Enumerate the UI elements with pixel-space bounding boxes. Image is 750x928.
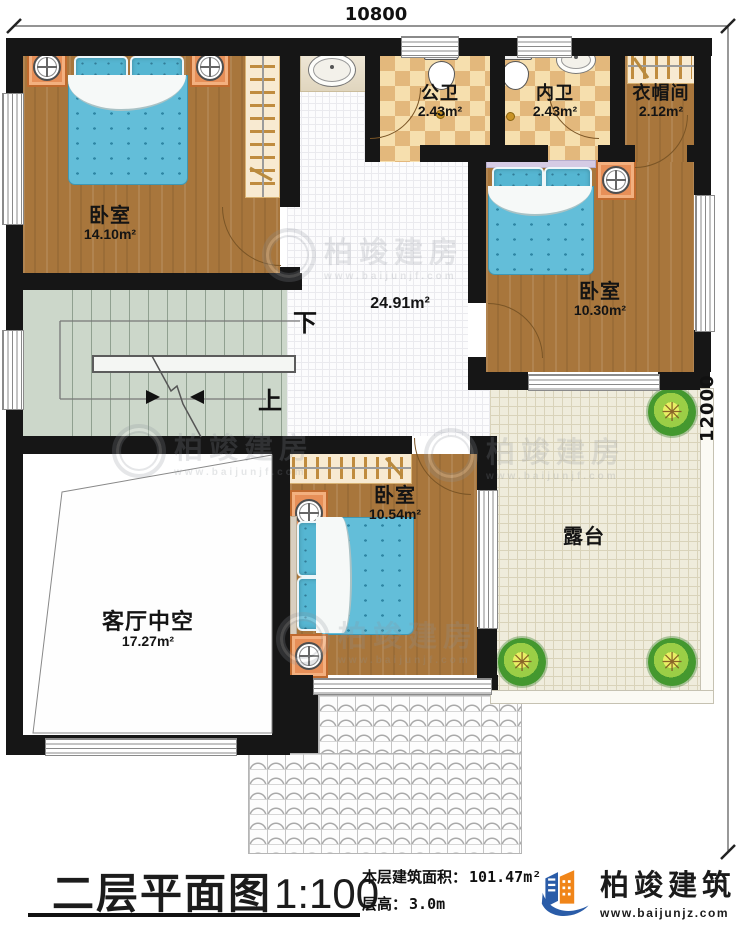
room-living-void <box>23 455 272 735</box>
terrace-bottom-border <box>490 690 714 704</box>
watermark: 柏竣建房www.baijunjf.com <box>424 428 626 482</box>
label-stairs-up: 上 <box>258 381 282 416</box>
plant: ✳ <box>648 388 696 436</box>
drawing-info: 本层建筑面积：101.47m² 层高：3.0m <box>362 864 541 918</box>
window <box>2 330 24 410</box>
wall <box>365 145 370 162</box>
window <box>45 738 237 756</box>
lamp-icon <box>602 166 630 194</box>
label-public-bath: 公卫 2.43m² <box>398 84 482 119</box>
wall <box>468 162 486 303</box>
floor-area-row: 本层建筑面积：101.47m² <box>362 864 541 891</box>
wall <box>6 448 23 755</box>
brand-block: 柏竣建筑 www.baijunjz.com <box>540 862 736 920</box>
roof-tiles-lower <box>248 753 522 854</box>
wall <box>280 38 300 207</box>
wall <box>490 38 505 162</box>
window <box>313 678 492 695</box>
branches-icon: ✳ <box>511 649 533 675</box>
label-terrace: 露台 <box>522 526 646 548</box>
branches-icon: ✳ <box>661 399 683 425</box>
title-underline <box>28 913 360 917</box>
drawing-title: 二层平面图1:100 <box>52 860 379 921</box>
stair-handrail <box>92 355 296 373</box>
watermark: 柏竣建房www.baijunjf.com <box>276 612 478 666</box>
plant: ✳ <box>498 638 546 686</box>
wall <box>6 38 712 56</box>
lamp-icon <box>33 53 61 81</box>
lamp-icon <box>196 53 224 81</box>
watermark: 柏竣建房www.baijunjf.com <box>262 228 464 282</box>
label-bedroom-right: 卧室 10.30m² <box>538 281 662 318</box>
dimension-right: 12000 <box>697 366 718 442</box>
window <box>478 490 498 629</box>
wardrobe-rail <box>245 48 280 198</box>
label-living-void: 客厅中空 17.27m² <box>76 610 220 650</box>
plant: ✳ <box>648 638 696 686</box>
wall <box>420 145 548 162</box>
dimension-top: 10800 <box>336 4 416 25</box>
watermark-logo-icon <box>112 424 166 478</box>
watermark: 柏竣建房www.baijunjf.com <box>112 424 314 478</box>
watermark-logo-icon <box>262 228 316 282</box>
wall <box>6 273 302 290</box>
window <box>2 93 24 225</box>
wall <box>687 145 710 162</box>
roof-tiles-upper <box>318 695 522 755</box>
label-hall-area: 24.91m² <box>338 295 462 313</box>
wall <box>486 372 528 390</box>
brand-logo-icon <box>540 864 594 918</box>
label-cloakroom: 衣帽间 2.12m² <box>615 84 707 119</box>
floor-height-row: 层高：3.0m <box>362 891 541 918</box>
window <box>517 36 572 58</box>
wall <box>272 695 318 753</box>
floor-plan: ✳ ✳ ✳ 10800 12000 卧室 14.10m² 公卫 2.43m² 内… <box>0 0 750 928</box>
label-bedroom-bottom: 卧室 10.54m² <box>333 485 457 522</box>
window <box>401 36 459 58</box>
bed-double <box>486 160 594 275</box>
label-bedroom-top-left: 卧室 14.10m² <box>48 205 172 242</box>
wall <box>272 675 313 695</box>
wall <box>468 357 486 390</box>
bed-double <box>66 47 188 185</box>
label-private-bath: 内卫 2.43m² <box>513 84 597 119</box>
branches-icon: ✳ <box>661 649 683 675</box>
watermark-logo-icon <box>276 612 330 666</box>
window <box>695 195 715 332</box>
wall <box>598 145 635 162</box>
nightstand <box>596 160 636 200</box>
window <box>528 374 660 391</box>
sink <box>308 53 356 87</box>
label-stairs-down: 下 <box>293 303 317 338</box>
watermark-logo-icon <box>424 428 478 482</box>
